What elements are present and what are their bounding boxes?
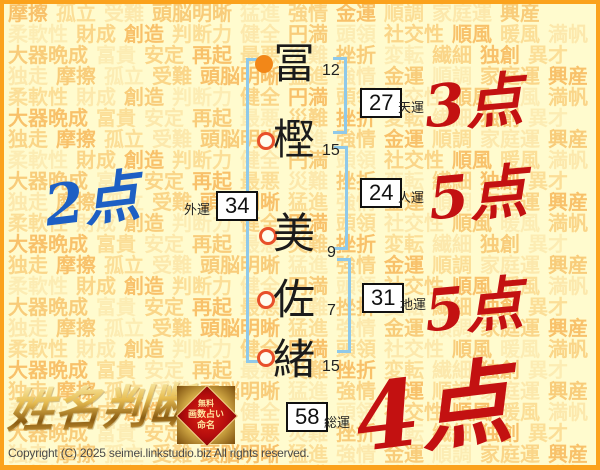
souun-value-box: 58 [286, 402, 328, 432]
jinun-label: 人運 [398, 187, 424, 206]
free-kakusuuranai-badge: 無料 画数占い 命名 [177, 386, 235, 444]
name-char-1: 冨 [266, 42, 322, 86]
name-char-2: 樫 [266, 118, 322, 162]
seimei-handan-result: 摩擦孤立受難頭脳明晰猛進強情金運順調家庭運興産柔軟性財成創造判断力健全円満頭領社… [0, 0, 600, 470]
name-char-4: 佐 [266, 278, 322, 322]
badge-line-3: 命名 [197, 420, 215, 431]
tenun-label: 天運 [398, 97, 424, 116]
tenun-bracket-tick-bottom [333, 131, 345, 134]
name-char-1-strokes: 12 [322, 62, 340, 80]
gaiun-value-box: 34 [216, 191, 258, 221]
name-char-2-strokes: 15 [322, 142, 340, 160]
name-char-3: 美 [266, 212, 322, 256]
chiun-bracket-tick-top [337, 258, 349, 261]
name-char-4-strokes: 7 [327, 302, 336, 320]
site-logo[interactable]: 姓名判断 [6, 379, 198, 438]
tenun-score-stamp: 3点 [421, 52, 526, 144]
gaiun-score-stamp: 2点 [39, 151, 143, 243]
badge-line-2: 画数占い [188, 409, 224, 420]
name-char-5-strokes: 15 [322, 358, 340, 376]
tenun-value-box: 27 [360, 88, 402, 118]
name-char-3-strokes: 9 [327, 244, 336, 262]
jinun-bracket-line [345, 146, 348, 250]
copyright-text: Copyright (C) 2025 seimei.linkstudio.biz… [8, 446, 309, 460]
chiun-label: 地運 [400, 294, 426, 313]
tenun-bracket-line [344, 57, 347, 134]
chiun-value-box: 31 [362, 283, 404, 313]
jinun-value-box: 24 [360, 178, 402, 208]
souun-score-stamp: 4点 [346, 327, 517, 470]
badge-line-1: 無料 [198, 399, 214, 409]
jinun-score-stamp: 5点 [425, 144, 530, 236]
gaiun-label: 外運 [184, 199, 210, 218]
souun-label: 総運 [324, 412, 350, 431]
tenun-bracket-tick-top [333, 57, 345, 60]
name-char-5: 緒 [266, 338, 322, 382]
chiun-bracket-line [348, 258, 351, 353]
